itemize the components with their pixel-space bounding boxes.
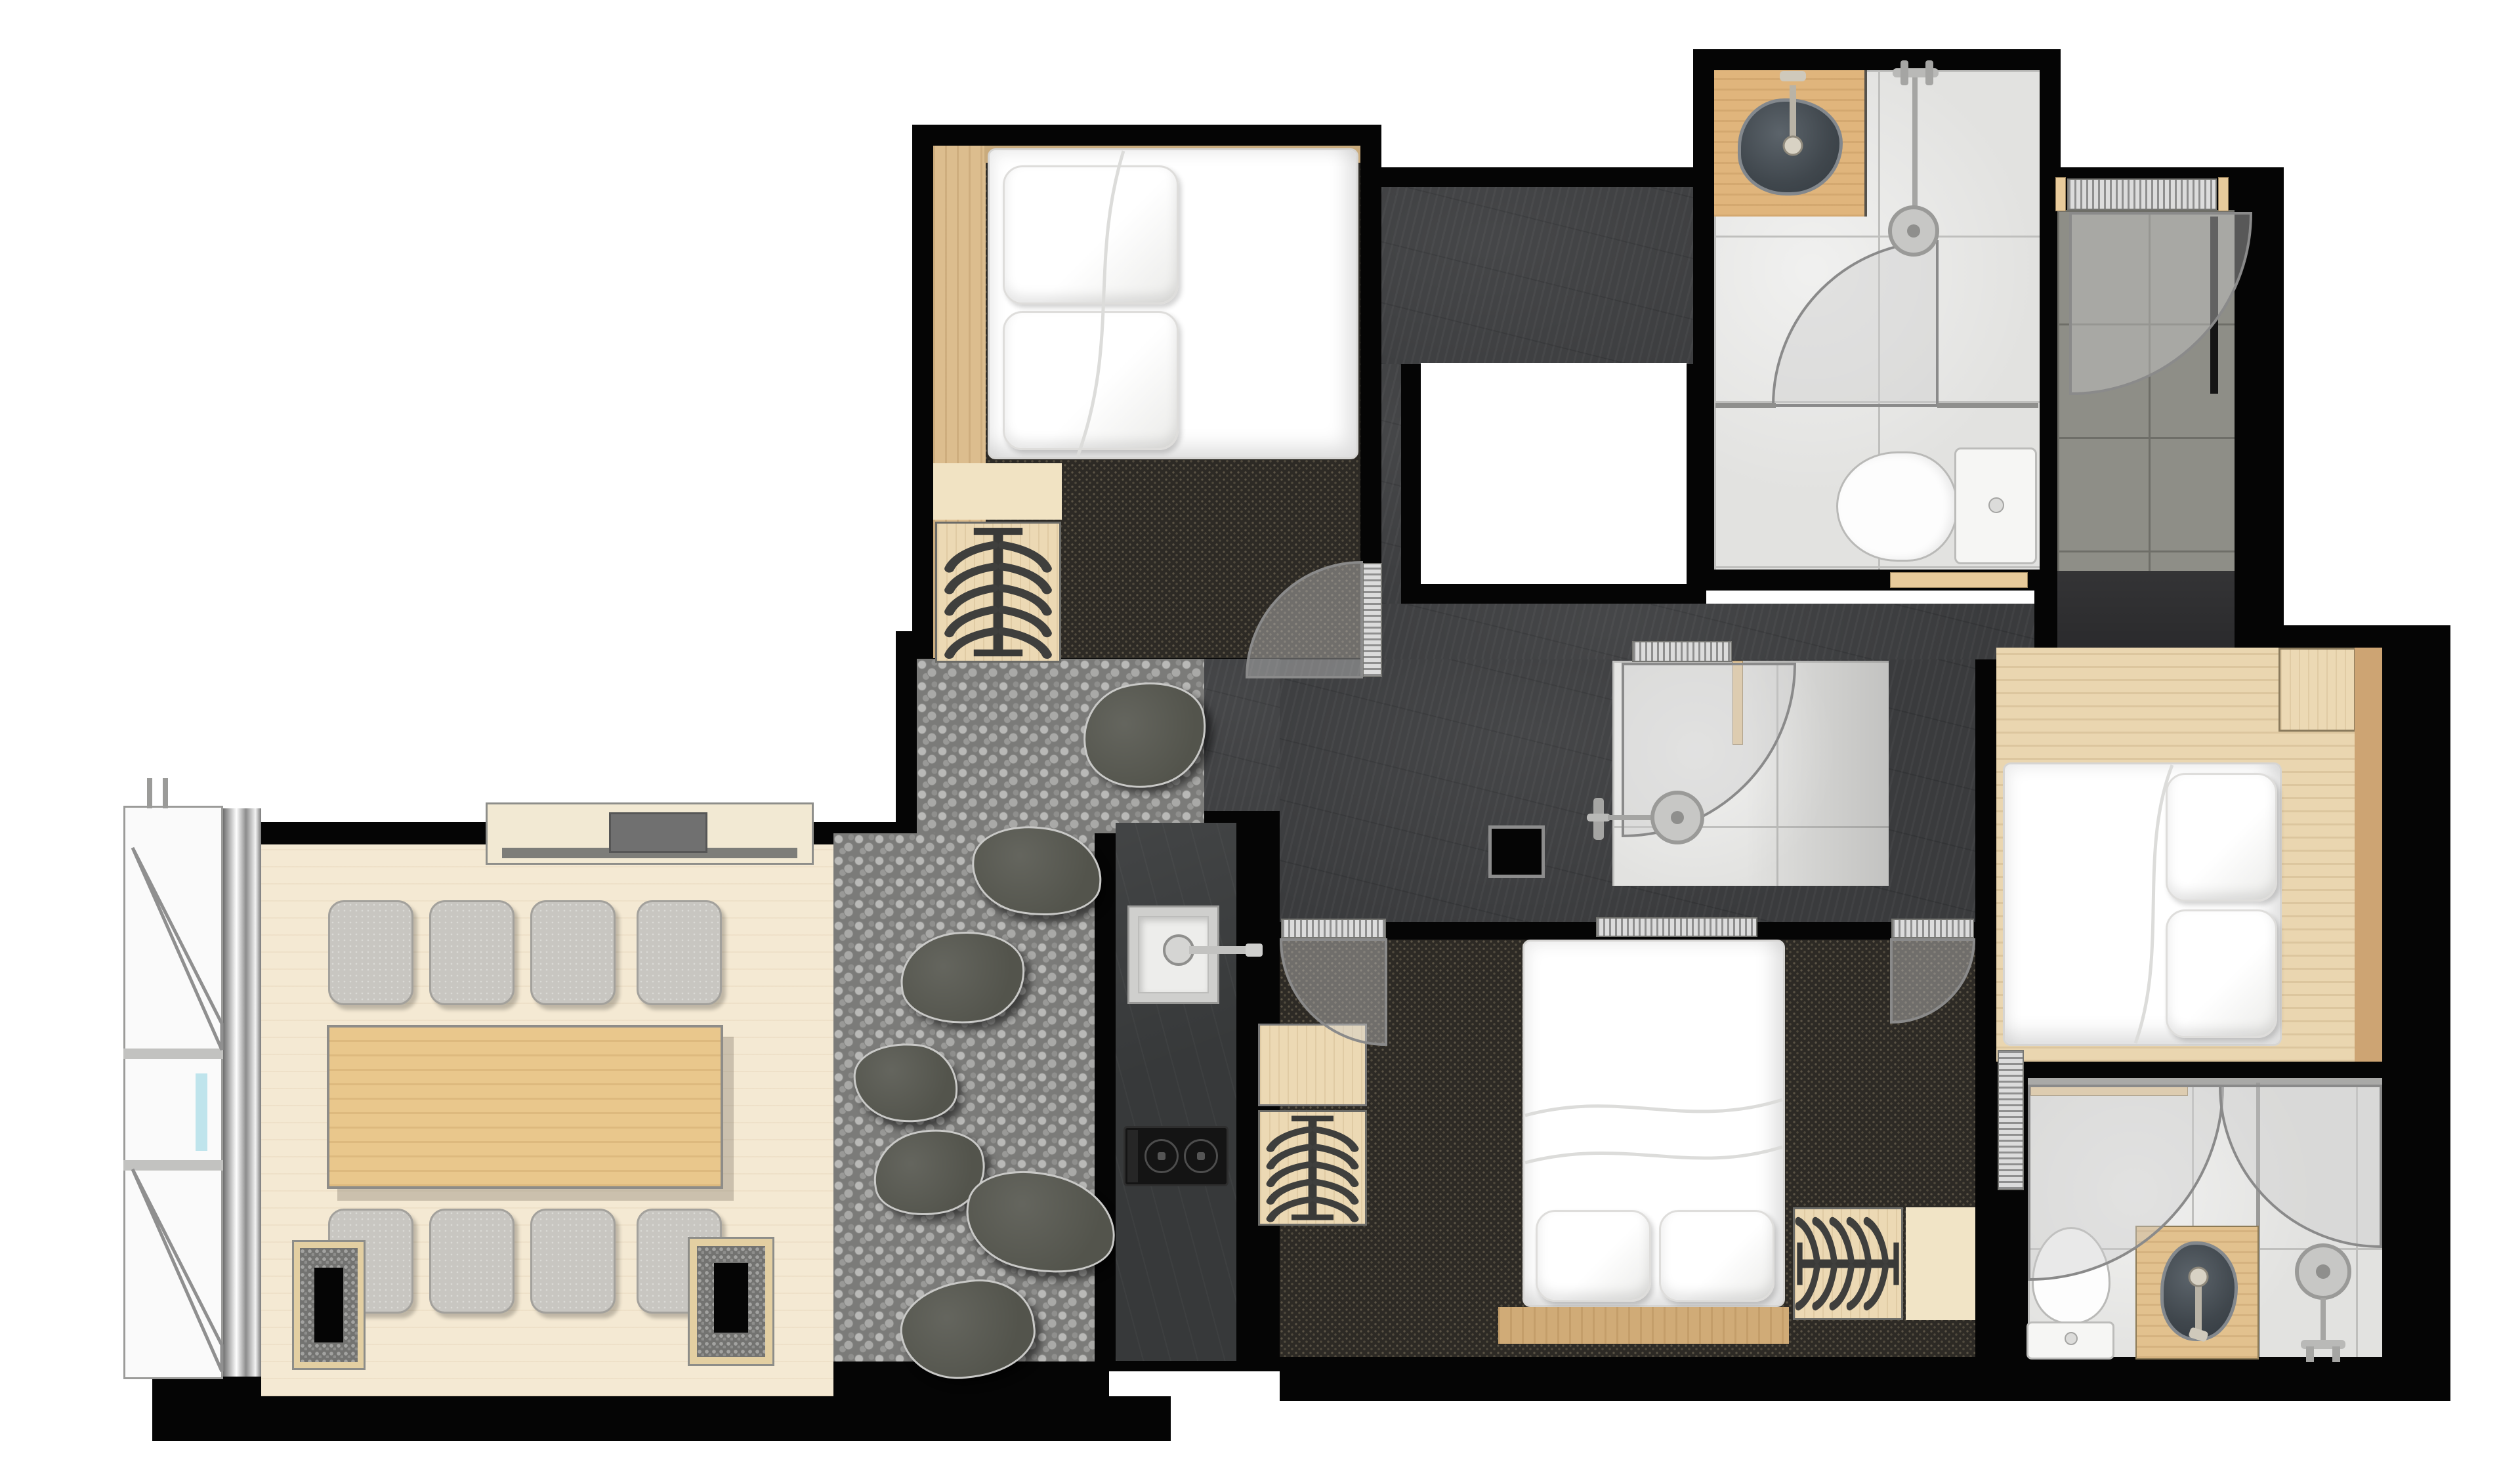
hallway-door-leaf [1891,919,1974,938]
bedroom3-nightstand [2278,648,2356,732]
bed3-pillow [2166,909,2277,1038]
wall-garden-left [896,631,917,833]
bedroom1-wardrobe [935,522,1061,663]
dining-chair [328,900,413,1005]
hanger-rack-icon [1794,1211,1902,1317]
tv-icon [609,812,707,853]
bed1-pillow [1003,311,1179,450]
bedroom1-door-leaf [1362,563,1382,677]
bathroom2-sliding-door [1998,1050,2024,1190]
hanger-rack-icon [1260,1112,1365,1224]
bed3-pillow [2166,773,2277,902]
dining-chair [637,900,722,1005]
window-curtain [223,808,261,1377]
dining-chair [530,1209,616,1314]
plan-void-cutout [1421,363,1687,584]
dining-chair [429,900,514,1005]
bathroom2-top-rail [2028,1078,2382,1085]
wall-corridor-cap [1381,167,1693,187]
entrance-door-jamb [2055,177,2066,211]
bedroom2-wood-patch [1906,1207,1975,1320]
window-stub [163,778,168,808]
bay-window-panel [123,806,223,1379]
dining-table [327,1025,723,1189]
bed1-pillow [1003,165,1179,304]
cooktop-burner-dot [1197,1152,1205,1160]
wall-bed2-bed3-divider [1975,627,1996,1357]
bedroom2-door-leaf [1281,919,1386,938]
toilet1-flush-button [1988,497,2004,513]
floor-lantern-core [314,1268,343,1342]
wall-bathroom2-bottom [1995,1357,2450,1401]
bathroom1-door-threshold [1890,572,2028,588]
corridor-slate-left-strip [1381,364,1401,604]
bedroom2-wardrobe-left [1258,1110,1367,1226]
entrance-door-jamb [2218,177,2229,211]
entry-door-track [2210,217,2218,394]
bed2-pillow [1659,1210,1774,1302]
cooktop-control-strip [1127,1130,1138,1182]
toilet2-flush-button [2065,1332,2078,1345]
entrance-door-leaf [2067,178,2217,210]
shower-room-jamb [1732,661,1743,745]
bedroom3-headboard-plank [2355,648,2382,1062]
wall-bedroom3-right [2382,625,2450,1401]
bedroom2-nightstand [1258,1024,1367,1106]
shower-room-shade [1746,661,1889,886]
bathroom2-wood-strip [2030,1087,2188,1096]
bed2-foot-plank [1498,1307,1789,1344]
kitchen-sink-basin [1138,916,1209,993]
wall-dining-bottom [231,1396,1171,1441]
entry-tile-floor [2057,210,2235,571]
toilet1-bowl [1836,451,1958,562]
window-stub [147,778,152,808]
corridor-slate-mid [1204,659,1280,811]
dining-chair [530,900,616,1005]
window-mullion [123,1049,223,1059]
floor-lantern-core [714,1263,748,1333]
hanger-rack-icon [937,524,1059,661]
service-shaft [1488,825,1545,878]
bed2-pillow [1536,1210,1651,1302]
window-mullion [123,1160,223,1171]
wall-bedroom2-bottom [1280,1357,1995,1401]
window-glass-blue [196,1073,207,1151]
kitchen-counter [1116,823,1236,1361]
corridor-slate-upper [1381,187,1693,364]
cooktop-burner-dot [1158,1152,1165,1160]
dining-chair [429,1209,514,1314]
shower-room-lower-hatch [1596,917,1757,937]
bedroom1-wood-patch [933,463,1062,520]
shower-room-door-leaf [1632,641,1732,662]
bedroom2-wardrobe-right [1793,1207,1903,1320]
floor-plan-canvas [0,0,2520,1475]
